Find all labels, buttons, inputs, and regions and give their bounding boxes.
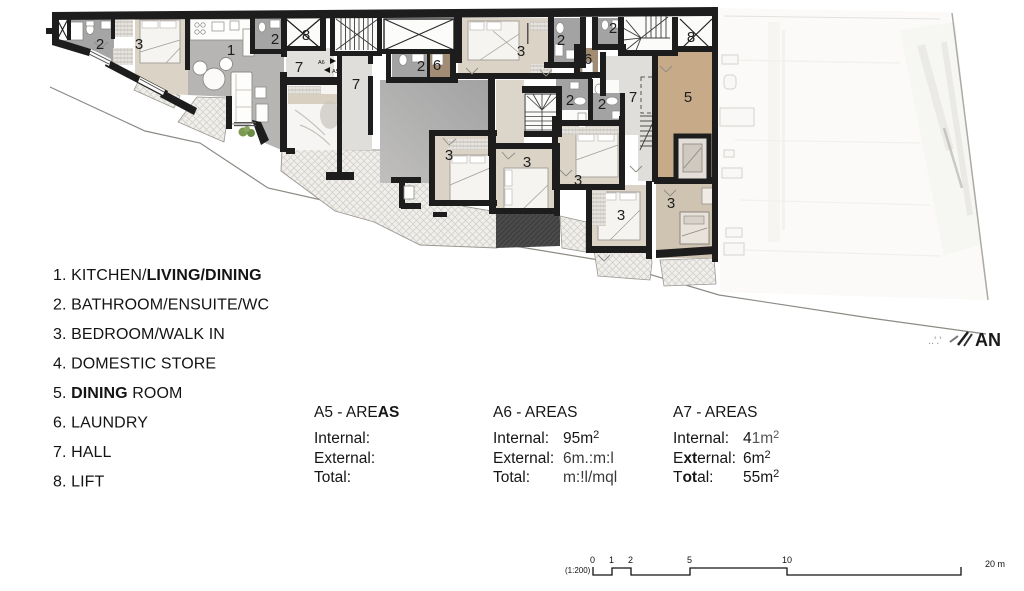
svg-text:5: 5 — [687, 555, 692, 565]
svg-text:3: 3 — [617, 207, 625, 224]
svg-text:Internal:: Internal: — [673, 430, 729, 447]
svg-text:A6 - AREAS: A6 - AREAS — [493, 404, 577, 421]
svg-text:..'.': ..'.' — [928, 335, 941, 347]
svg-text:95m2: 95m2 — [563, 429, 599, 447]
svg-text:AN: AN — [975, 330, 1001, 350]
svg-text:20 m: 20 m — [985, 559, 1005, 569]
svg-text:Total:: Total: — [493, 469, 530, 486]
svg-text:6: 6 — [433, 57, 441, 74]
svg-text:41m2: 41m2 — [743, 429, 779, 447]
svg-text:1. KITCHEN/LIVING/DINING: 1. KITCHEN/LIVING/DINING — [53, 267, 262, 284]
svg-text:8. LIFT: 8. LIFT — [53, 474, 105, 491]
svg-text:2: 2 — [566, 92, 574, 109]
svg-text:3: 3 — [667, 195, 675, 212]
svg-text:6m2: 6m2 — [743, 449, 771, 467]
svg-text:2. BATHROOM/ENSUITE/WC: 2. BATHROOM/ENSUITE/WC — [53, 297, 269, 314]
svg-text:m:!l/mql: m:!l/mql — [563, 469, 617, 486]
svg-text:8: 8 — [687, 29, 695, 46]
svg-text:5. DINING ROOM: 5. DINING ROOM — [53, 385, 182, 402]
svg-text:2: 2 — [271, 31, 279, 48]
svg-text:8: 8 — [302, 27, 310, 44]
svg-text:7. HALL: 7. HALL — [53, 444, 112, 461]
svg-text:A7 - AREAS: A7 - AREAS — [673, 404, 757, 421]
svg-text:2: 2 — [609, 20, 617, 37]
svg-text:3: 3 — [574, 172, 582, 189]
svg-text:3: 3 — [523, 154, 531, 171]
svg-text:4. DOMESTIC STORE: 4. DOMESTIC STORE — [53, 356, 216, 373]
svg-text:A6: A6 — [318, 60, 325, 66]
svg-text:7: 7 — [629, 89, 637, 106]
svg-text:2: 2 — [598, 96, 606, 113]
svg-text:2: 2 — [557, 32, 565, 49]
svg-text:3: 3 — [517, 43, 525, 60]
svg-text:3: 3 — [445, 147, 453, 164]
svg-text:10: 10 — [782, 555, 792, 565]
svg-text:Total:: Total: — [314, 469, 351, 486]
svg-text:5: 5 — [684, 89, 692, 106]
svg-text:External:: External: — [493, 450, 554, 467]
svg-text:7: 7 — [352, 76, 360, 93]
svg-text:3: 3 — [135, 36, 143, 53]
svg-text:6m.:m:l: 6m.:m:l — [563, 450, 614, 467]
svg-text:2: 2 — [628, 555, 633, 565]
svg-text:A5 - AREAS: A5 - AREAS — [314, 404, 399, 421]
svg-text:Internal:: Internal: — [493, 430, 549, 447]
svg-text:A5: A5 — [332, 69, 339, 75]
svg-text:2: 2 — [417, 58, 425, 75]
svg-text:55m2: 55m2 — [743, 468, 779, 486]
svg-text:(1:200): (1:200) — [565, 566, 591, 575]
svg-text:1: 1 — [227, 42, 235, 59]
svg-text:0: 0 — [590, 555, 595, 565]
svg-text:Total:: Total: — [673, 469, 713, 486]
svg-text:3. BEDROOM/WALK IN: 3. BEDROOM/WALK IN — [53, 326, 225, 343]
svg-text:Internal:: Internal: — [314, 430, 370, 447]
svg-text:1: 1 — [609, 555, 614, 565]
svg-text:External:: External: — [673, 450, 736, 467]
svg-text:7: 7 — [295, 59, 303, 76]
svg-text:External:: External: — [314, 450, 375, 467]
svg-text:2: 2 — [96, 36, 104, 53]
svg-text:6: 6 — [584, 51, 592, 68]
svg-text:6. LAUNDRY: 6. LAUNDRY — [53, 415, 148, 432]
